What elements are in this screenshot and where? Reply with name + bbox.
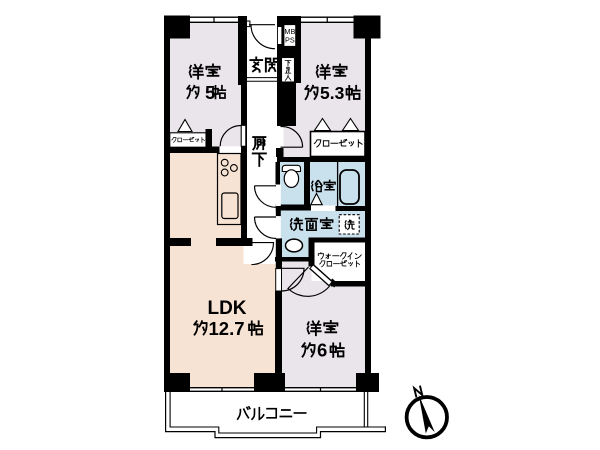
- svg-text:6: 6: [317, 340, 327, 361]
- svg-text:5.3: 5.3: [320, 83, 345, 103]
- svg-text:12.7: 12.7: [209, 318, 245, 339]
- svg-text:PS: PS: [285, 35, 295, 44]
- svg-text:LDK: LDK: [207, 298, 246, 319]
